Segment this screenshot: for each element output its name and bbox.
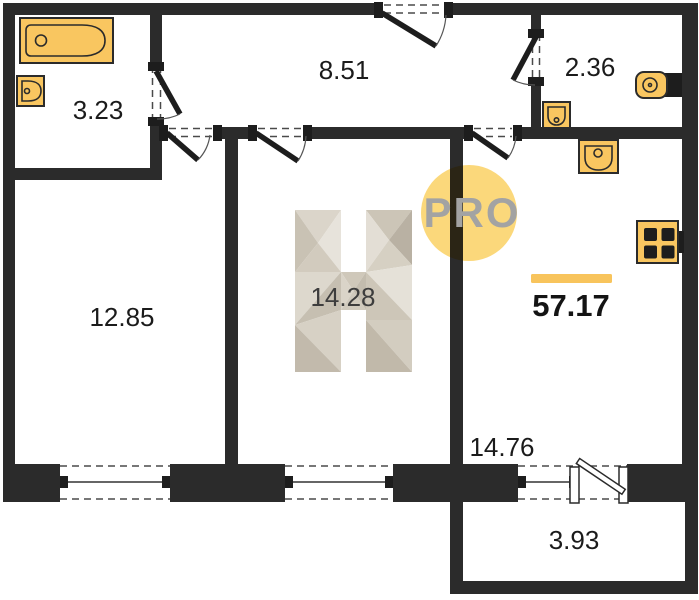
total-area: 57.17: [531, 274, 612, 323]
room-label-bedroom: 12.85: [89, 302, 154, 332]
bedroom-door: [159, 125, 222, 160]
floorplan-svg: 3.23 8.51 2.36 12.85 14.28 14.76 3.93 57…: [0, 0, 699, 600]
total-area-label: 57.17: [532, 288, 610, 323]
balcony-door: [570, 459, 628, 503]
room-label-hallway: 8.51: [319, 55, 370, 85]
kitchen-sink-icon: [579, 140, 618, 173]
living-room-door: [248, 125, 312, 161]
bathroom-door: [148, 62, 180, 126]
bathtub-icon: [20, 18, 113, 63]
toilet-door: [513, 29, 544, 86]
entrance-door: [374, 2, 453, 46]
stove-icon: [637, 221, 684, 263]
window-living-room: [285, 466, 393, 499]
wc-sink-icon: [543, 102, 570, 128]
room-label-kitchen: 14.76: [469, 432, 534, 462]
floorplan-canvas: 3.23 8.51 2.36 12.85 14.28 14.76 3.93 57…: [0, 0, 699, 600]
pro-badge: PRO: [421, 165, 521, 261]
pro-badge-label: PRO: [423, 189, 520, 236]
bathroom-sink-icon: [17, 76, 44, 106]
room-label-balcony: 3.93: [549, 525, 600, 555]
total-area-underline: [531, 274, 612, 283]
toilet-icon: [636, 72, 682, 98]
window-bedroom: [60, 466, 170, 499]
room-label-toilet: 2.36: [565, 52, 616, 82]
kitchen-door: [464, 125, 522, 158]
room-label-bathroom: 3.23: [73, 95, 124, 125]
room-label-living-room: 14.28: [310, 282, 375, 312]
